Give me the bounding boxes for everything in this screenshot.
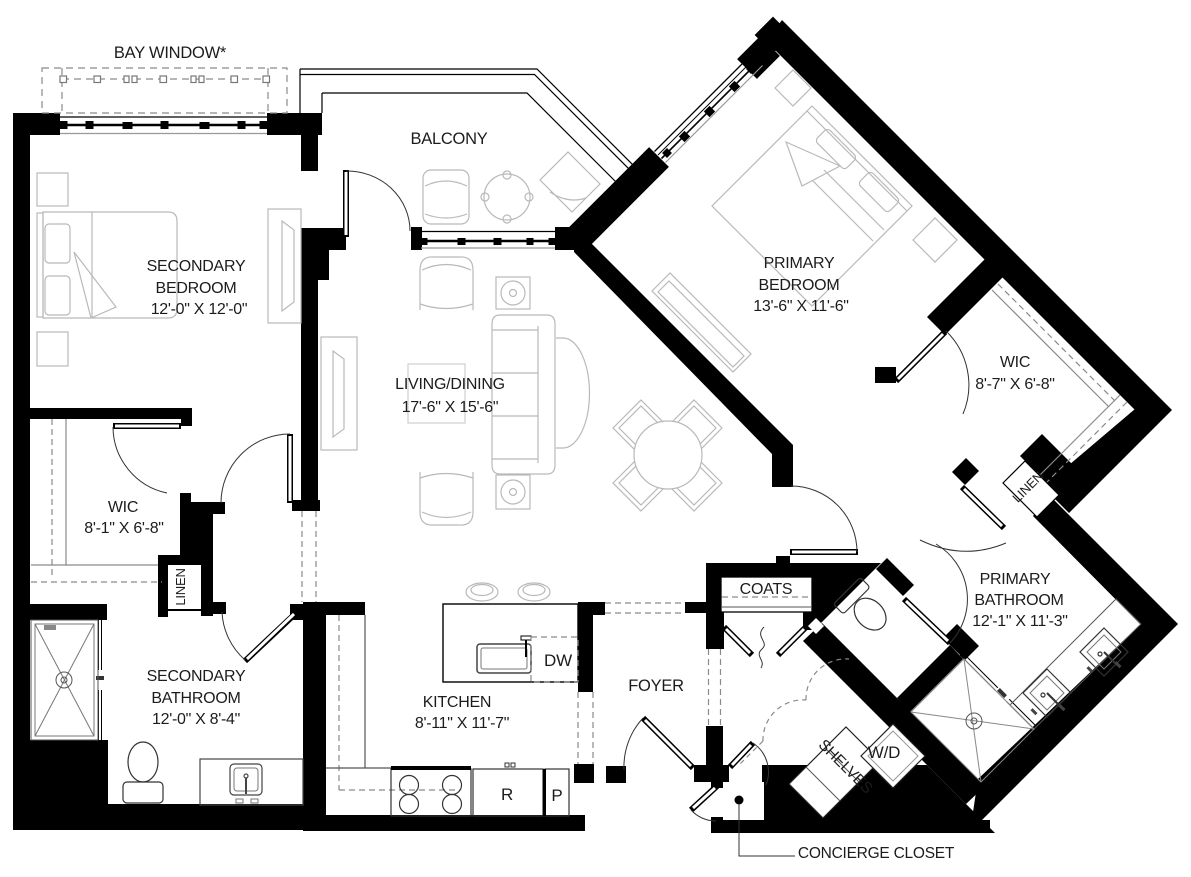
svg-text:BEDROOM: BEDROOM [759, 277, 840, 294]
svg-text:DW: DW [544, 651, 572, 670]
svg-text:SECONDARY: SECONDARY [147, 258, 246, 275]
svg-text:R: R [501, 785, 513, 804]
svg-text:8'-7" X 6'-8": 8'-7" X 6'-8" [975, 376, 1054, 393]
svg-text:8'-1" X 6'-8": 8'-1" X 6'-8" [84, 520, 163, 537]
svg-text:COATS: COATS [740, 581, 793, 598]
svg-text:BATHROOM: BATHROOM [974, 592, 1063, 609]
svg-text:WIC: WIC [108, 499, 138, 516]
svg-text:SECONDARY: SECONDARY [147, 668, 246, 685]
svg-text:PRIMARY: PRIMARY [980, 571, 1051, 588]
svg-text:PRIMARY: PRIMARY [764, 255, 835, 272]
svg-text:13'-6" X 11'-6": 13'-6" X 11'-6" [753, 298, 848, 315]
svg-text:12'-1" X 11'-3": 12'-1" X 11'-3" [972, 613, 1067, 630]
svg-text:BALCONY: BALCONY [410, 130, 487, 148]
svg-text:WIC: WIC [1000, 354, 1030, 371]
svg-text:8'-11" X 11'-7": 8'-11" X 11'-7" [415, 715, 509, 732]
svg-text:P: P [551, 786, 562, 805]
svg-text:KITCHEN: KITCHEN [423, 694, 491, 711]
svg-text:LINEN: LINEN [173, 568, 188, 605]
svg-text:BATHROOM: BATHROOM [151, 690, 240, 707]
svg-text:W/D: W/D [868, 743, 900, 762]
svg-text:BAY WINDOW*: BAY WINDOW* [114, 44, 227, 62]
svg-text:CONCIERGE CLOSET: CONCIERGE CLOSET [798, 845, 955, 862]
svg-text:BEDROOM: BEDROOM [156, 280, 237, 297]
svg-text:17'-6" X 15'-6": 17'-6" X 15'-6" [402, 399, 499, 416]
svg-text:FOYER: FOYER [628, 677, 684, 695]
svg-text:LIVING/DINING: LIVING/DINING [395, 376, 505, 393]
svg-text:12'-0" X 12'-0": 12'-0" X 12'-0" [151, 301, 248, 318]
svg-text:12'-0" X 8'-4": 12'-0" X 8'-4" [152, 711, 240, 728]
